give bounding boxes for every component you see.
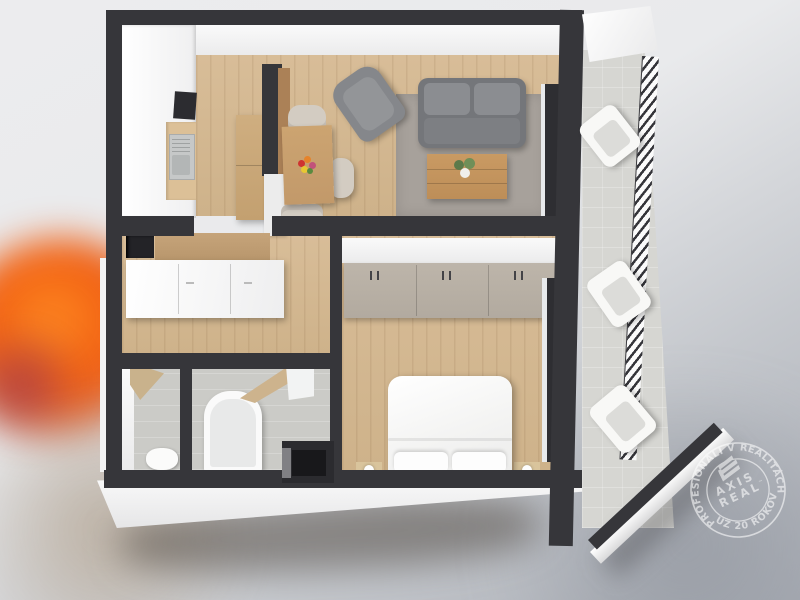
entrance-recess <box>282 441 334 483</box>
wardrobe-door-seam2 <box>230 264 231 314</box>
bedroom-wardrobe-handle3b <box>521 271 523 280</box>
bedroom-wardrobe-seam2 <box>488 265 489 316</box>
bedroom-wardrobe-handle1a <box>370 271 372 280</box>
balcony-chair-3-seat <box>604 399 647 443</box>
sofa <box>418 78 526 148</box>
floorplan-render-scene: PROFESIONÁLI V REALITÁCH UŽ 20 ROKOV AXI… <box>0 0 800 600</box>
wall-bedroom-west <box>330 236 342 470</box>
wardrobe-handle2 <box>244 282 252 284</box>
sink-drainer-lines <box>172 138 190 152</box>
entrance-recess-inner <box>292 450 326 476</box>
dining-chair-east <box>331 158 354 198</box>
bedroom-wardrobe-handle3a <box>514 271 516 280</box>
bed <box>388 376 512 476</box>
bedroom-wardrobe-handle1b <box>377 271 379 280</box>
duvet-fold <box>388 438 512 441</box>
wardrobe-handle1 <box>186 282 194 284</box>
stamp-trademark: ™ <box>758 479 765 486</box>
bathtub <box>204 391 262 473</box>
balcony-chair-1-seat <box>592 118 633 159</box>
wall-top <box>106 10 582 25</box>
bathtub-interior <box>210 399 256 467</box>
table-plank-line2 <box>427 183 507 184</box>
sofa-cushion-left <box>424 83 470 115</box>
entrance-door-face <box>282 448 291 478</box>
watermark-stamp: PROFESIONÁLI V REALITÁCH UŽ 20 ROKOV AXI… <box>668 420 800 560</box>
plant-vase <box>460 168 470 178</box>
coffee-table-plant <box>452 158 480 182</box>
wardrobe-door-seam1 <box>178 264 179 314</box>
sofa-seat <box>424 118 520 144</box>
bedroom-wardrobe-top <box>342 238 562 263</box>
bedroom-wardrobe-seam1 <box>416 265 417 316</box>
hallway-wardrobe <box>126 260 284 318</box>
wall-left <box>106 10 122 480</box>
wall-mid-west <box>106 216 194 236</box>
wall-hall-bath <box>106 353 338 369</box>
bedroom-wardrobe-handle2a <box>442 271 444 280</box>
kitchen-sink <box>169 134 195 180</box>
wc-toilet <box>146 448 178 470</box>
bedroom-wardrobe-handle2b <box>449 271 451 280</box>
hallway-sideboard <box>155 233 270 261</box>
hallway-niche <box>126 233 154 258</box>
wall-mid-east <box>272 216 562 236</box>
wall-wc-bath <box>180 369 192 470</box>
bedroom-wardrobe-doors <box>344 263 560 318</box>
flower-leaf <box>307 168 313 174</box>
kitchen-cooktop <box>173 91 197 119</box>
sink-basin <box>172 155 190 175</box>
balcony-chair-2-seat <box>600 275 642 318</box>
sofa-cushion-right <box>474 83 520 115</box>
flower-bouquet <box>296 154 318 176</box>
wall-bottom <box>104 470 582 488</box>
balcony-north-wall <box>582 6 658 62</box>
